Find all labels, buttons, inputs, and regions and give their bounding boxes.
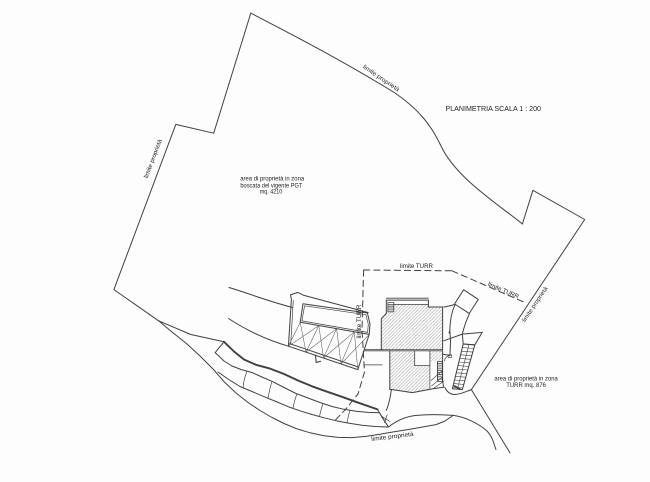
svg-text:mq. 4210: mq. 4210 xyxy=(260,189,283,196)
svg-text:limite proprietà: limite proprietà xyxy=(522,286,550,324)
svg-text:limite TURR: limite TURR xyxy=(356,304,363,339)
svg-text:area di proprietà in zona: area di proprietà in zona xyxy=(240,175,304,182)
svg-text:limite TURR: limite TURR xyxy=(400,263,434,270)
svg-text:limite TURR: limite TURR xyxy=(487,281,521,301)
svg-text:limite proprietà: limite proprietà xyxy=(144,138,164,179)
svg-text:limite proprietà: limite proprietà xyxy=(361,64,400,93)
svg-text:limite proprietà: limite proprietà xyxy=(371,431,415,443)
svg-text:TURR mq. 876: TURR mq. 876 xyxy=(506,382,546,389)
svg-text:PLANIMETRIA SCALA 1 : 200: PLANIMETRIA SCALA 1 : 200 xyxy=(446,104,542,113)
